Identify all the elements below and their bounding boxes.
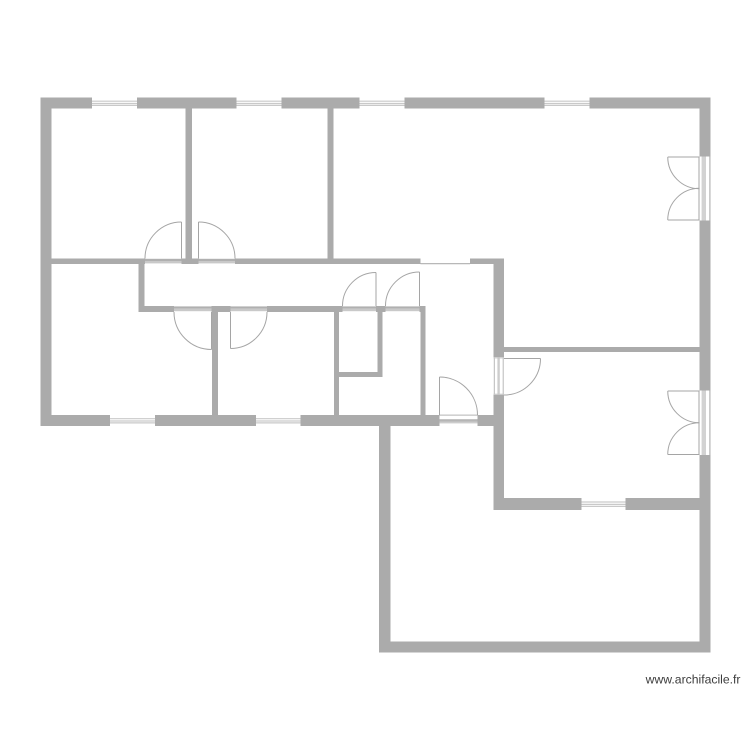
- svg-text:www.archifacile.fr: www.archifacile.fr: [645, 673, 741, 687]
